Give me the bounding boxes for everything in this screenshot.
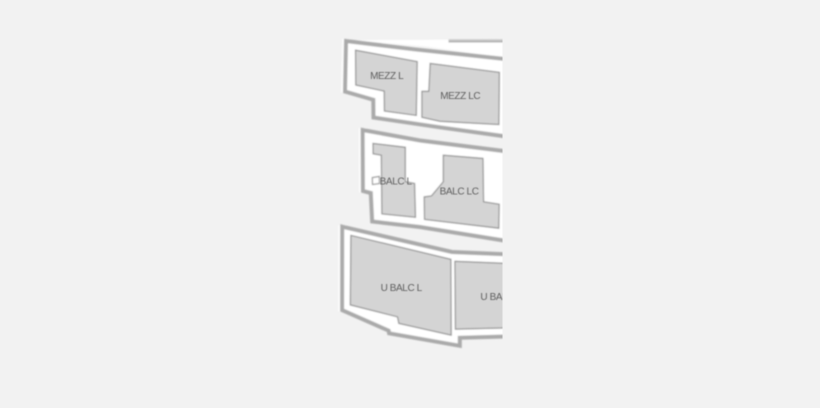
svg-text:MEZZ LC: MEZZ LC <box>440 91 480 102</box>
svg-text:BALC LC: BALC LC <box>440 186 479 197</box>
svg-text:BALC L: BALC L <box>380 176 413 187</box>
svg-text:MEZZ L: MEZZ L <box>370 71 404 82</box>
svg-text:U BALC L: U BALC L <box>381 283 423 294</box>
